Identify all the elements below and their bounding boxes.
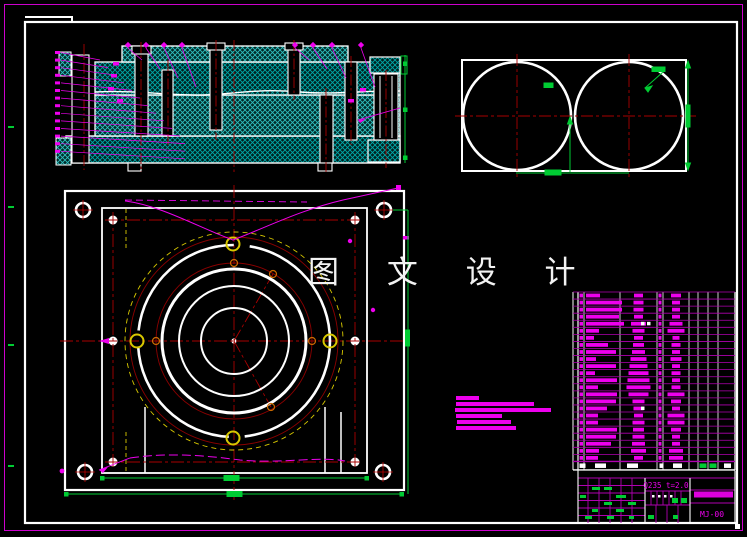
section-dim-right: [401, 55, 407, 163]
bom-table: [573, 292, 735, 470]
frame-center-ticks: [8, 126, 14, 467]
drawing-number: MJ-00: [700, 510, 724, 519]
part-title-blob: [694, 492, 733, 498]
technical-notes: [455, 396, 551, 430]
die-plan-view: [60, 185, 410, 500]
title-block-small-text: [580, 487, 687, 519]
section-view: [55, 40, 407, 172]
cad-drawing-window: 图 文 设 计 Q235 t=2: [0, 0, 747, 537]
material-spec: Q235 t=2.0: [643, 481, 689, 490]
frame-corner-mark: [735, 524, 740, 529]
blank-layout-view: [455, 54, 696, 179]
title-block: Q235 t=2.0 MJ-00: [578, 471, 735, 524]
plan-dimensions: [65, 210, 410, 497]
cad-canvas: 图 文 设 计 Q235 t=2: [0, 0, 747, 537]
watermark-text: 图 文 设 计: [308, 255, 595, 291]
